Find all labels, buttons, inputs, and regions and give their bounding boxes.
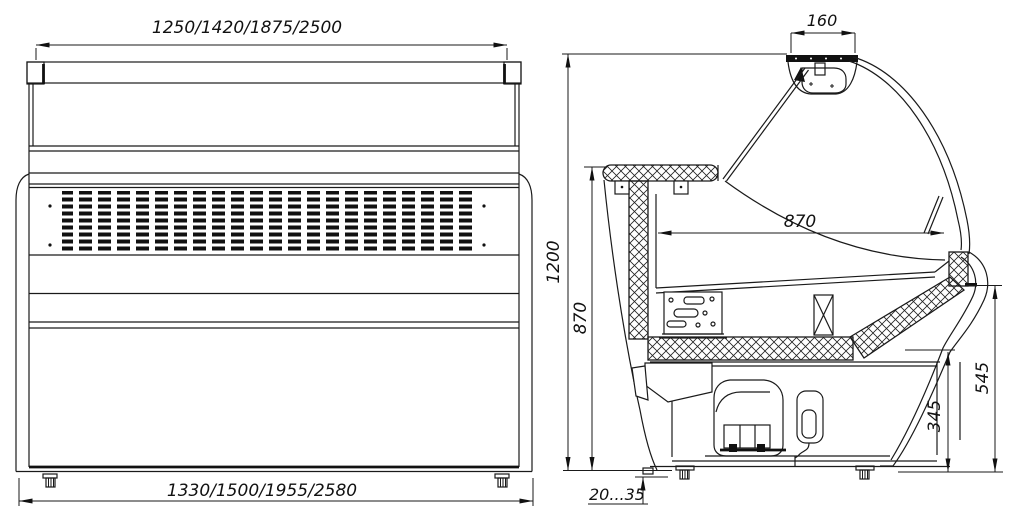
dim-worktop-height: 870 <box>571 167 606 471</box>
dim-front-bottom-width: 1330/1500/1955/2580 <box>19 478 533 506</box>
dim-overall-height-label: 1200 <box>544 240 564 283</box>
dim-front-bottom-width-label: 1330/1500/1955/2580 <box>167 481 357 501</box>
machine-compartment <box>632 362 960 479</box>
screw-dot <box>482 243 485 246</box>
bottom-insulation <box>648 337 853 360</box>
lamp-bracket <box>802 68 846 93</box>
insulation <box>603 165 968 360</box>
dim-display-depth-label: 870 <box>784 212 816 232</box>
rear-worktop <box>603 165 718 181</box>
screw-dot <box>482 204 485 207</box>
dim-canopy-width: 160 <box>791 11 855 53</box>
right-side-panel <box>519 174 532 472</box>
dim-front-top-width-label: 1250/1420/1875/2500 <box>152 18 342 38</box>
screw-dot <box>48 243 51 246</box>
cross-brace <box>814 295 833 335</box>
start-relay <box>795 391 823 458</box>
front-glass <box>849 57 970 254</box>
dim-base-height: 345 <box>905 350 955 472</box>
dim-front-top-width: 1250/1420/1875/2500 <box>36 18 507 60</box>
canopy-bar <box>27 62 521 84</box>
front-bumper <box>880 252 988 466</box>
front-body <box>16 83 532 472</box>
side-feet <box>643 466 874 479</box>
compartment-bracket <box>645 363 712 402</box>
dim-foot-adjust: 20...35 <box>588 477 648 504</box>
perforated-bracket <box>659 292 727 338</box>
worktop-brackets <box>615 181 688 194</box>
dim-worktop-height-label: 870 <box>571 302 591 334</box>
dim-canopy-width-label: 160 <box>807 11 838 30</box>
lamp-socket <box>815 63 825 75</box>
interior-curve <box>725 181 945 260</box>
ventilation-grille <box>48 191 485 252</box>
screw-dot <box>48 204 51 207</box>
left-side-panel <box>16 174 29 472</box>
technical-drawing-display-case: 1250/1420/1875/2500 <box>0 0 1013 522</box>
lamp-canopy <box>786 55 858 94</box>
back-wall-insulation <box>629 181 648 339</box>
base-frame <box>650 456 950 467</box>
dim-base-height-label: 345 <box>925 400 945 432</box>
front-insulation-diagonal <box>850 277 964 358</box>
dim-foot-adjust-label: 20...35 <box>589 485 645 504</box>
dim-display-depth: 870 <box>658 212 944 233</box>
front-sill-insulation <box>949 252 968 286</box>
compressor <box>714 380 786 456</box>
compartment-bracket-small <box>632 366 648 400</box>
front-view: 1250/1420/1875/2500 <box>16 18 533 506</box>
dim-front-height-label: 545 <box>973 362 993 394</box>
display-deck <box>656 181 949 293</box>
side-view: 160 1200 870 870 545 <box>544 11 1003 504</box>
drawing-canvas: 1250/1420/1875/2500 <box>0 0 1013 522</box>
